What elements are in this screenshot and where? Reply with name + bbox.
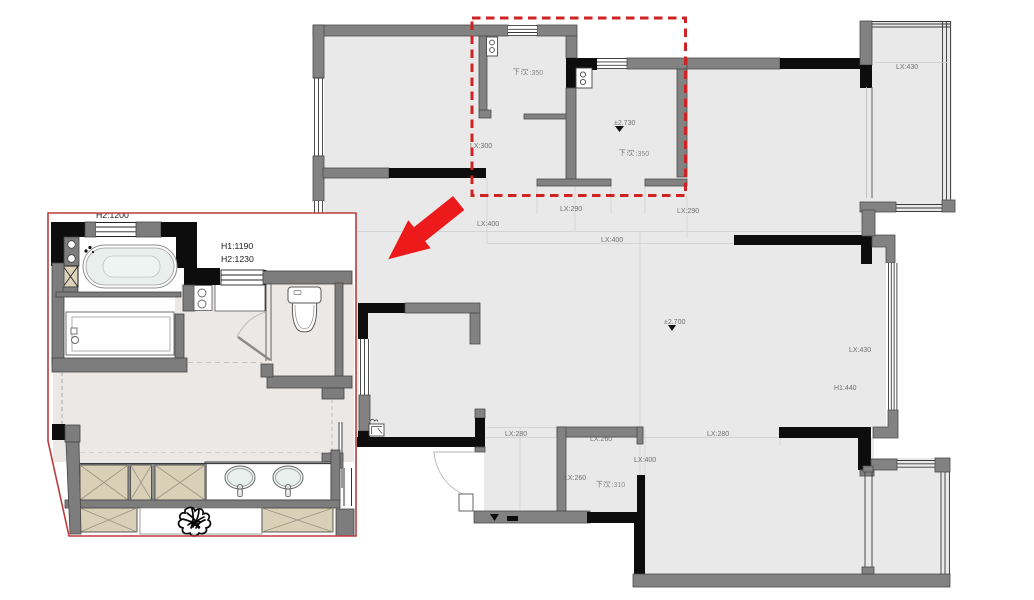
svg-text:LX:400: LX:400 <box>634 457 656 464</box>
svg-text:LX:280: LX:280 <box>505 431 527 438</box>
svg-text:LX:430: LX:430 <box>896 64 918 71</box>
svg-text:H2:1230: H2:1230 <box>221 254 254 264</box>
svg-text:LX:280: LX:280 <box>707 431 729 438</box>
svg-text:LX:400: LX:400 <box>477 221 499 228</box>
svg-text::350: :350 <box>636 151 650 158</box>
svg-text:±2.700: ±2.700 <box>664 319 685 326</box>
svg-text:LX:290: LX:290 <box>560 206 582 213</box>
svg-text:LX:400: LX:400 <box>601 237 623 244</box>
svg-text::310: :310 <box>612 482 626 489</box>
svg-text:LX:260: LX:260 <box>564 475 586 482</box>
svg-text:LX:290: LX:290 <box>677 208 699 215</box>
svg-text:±2.730: ±2.730 <box>614 120 635 127</box>
svg-text:LX:260: LX:260 <box>590 436 612 443</box>
svg-text::350: :350 <box>530 70 544 77</box>
svg-text:LX:430: LX:430 <box>849 347 871 354</box>
svg-text:H1:1190: H1:1190 <box>221 241 253 251</box>
svg-text:H1:440: H1:440 <box>834 385 857 392</box>
